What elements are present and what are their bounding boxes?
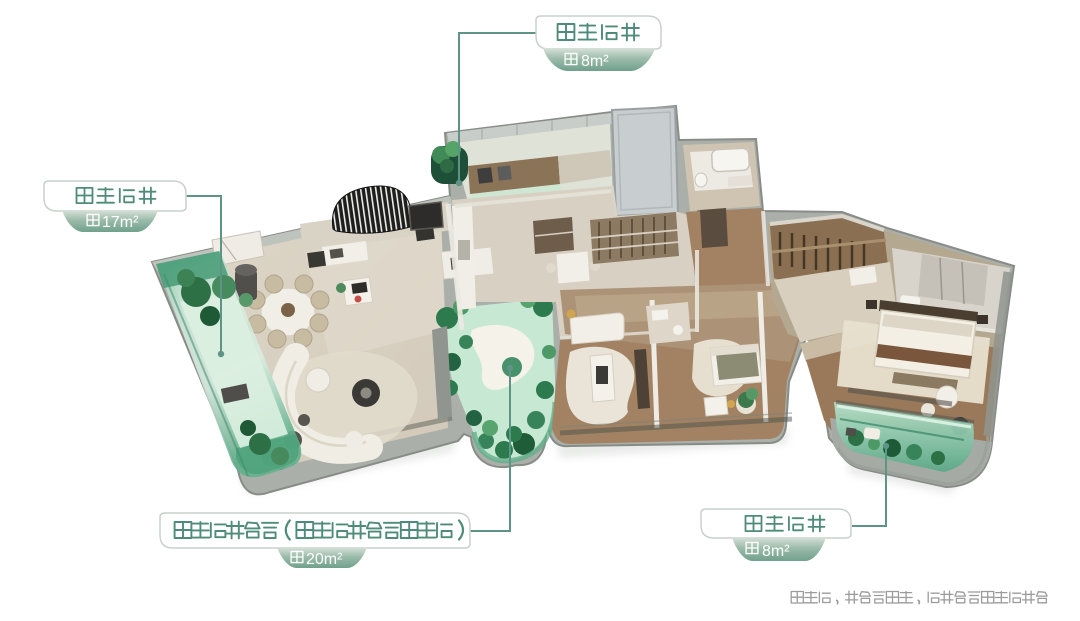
svg-text:17m²: 17m² xyxy=(102,214,139,231)
svg-text:20m²: 20m² xyxy=(306,551,343,568)
svg-text:8m²: 8m² xyxy=(581,53,609,70)
svg-text:8m²: 8m² xyxy=(762,543,790,560)
